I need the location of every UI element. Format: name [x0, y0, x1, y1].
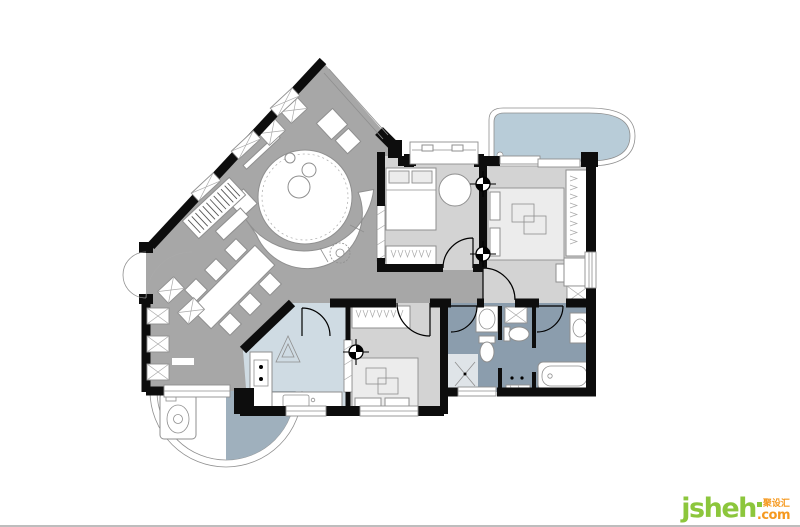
bathtub-icon	[538, 362, 591, 390]
watermark-logo: jsheh 聚设汇 .com	[681, 495, 790, 522]
sliding-door	[377, 205, 385, 261]
left-wall-cabinets	[147, 308, 169, 380]
toilet-icon	[504, 327, 529, 341]
bottom-window-2	[360, 406, 418, 416]
round-side-rug	[439, 174, 471, 206]
floor-plan	[0, 0, 800, 527]
page: jsheh 聚设汇 .com	[0, 0, 800, 527]
logo-square-icon	[757, 502, 762, 507]
right-wall-window	[585, 252, 596, 288]
brand-text: jsheh	[681, 495, 756, 522]
entry-arc	[123, 252, 146, 298]
tld-text: .com	[757, 509, 790, 522]
bay-window	[410, 142, 478, 164]
floor-mark	[172, 358, 194, 365]
shower-floor	[446, 354, 478, 390]
coffee-table	[288, 176, 310, 198]
bath-window	[458, 387, 496, 396]
washer-icon	[160, 393, 196, 439]
utility-sliding-door	[164, 385, 230, 397]
toilet-icon	[479, 336, 495, 362]
bottom-window-1	[286, 406, 326, 416]
wardrobe-icon	[352, 306, 410, 328]
